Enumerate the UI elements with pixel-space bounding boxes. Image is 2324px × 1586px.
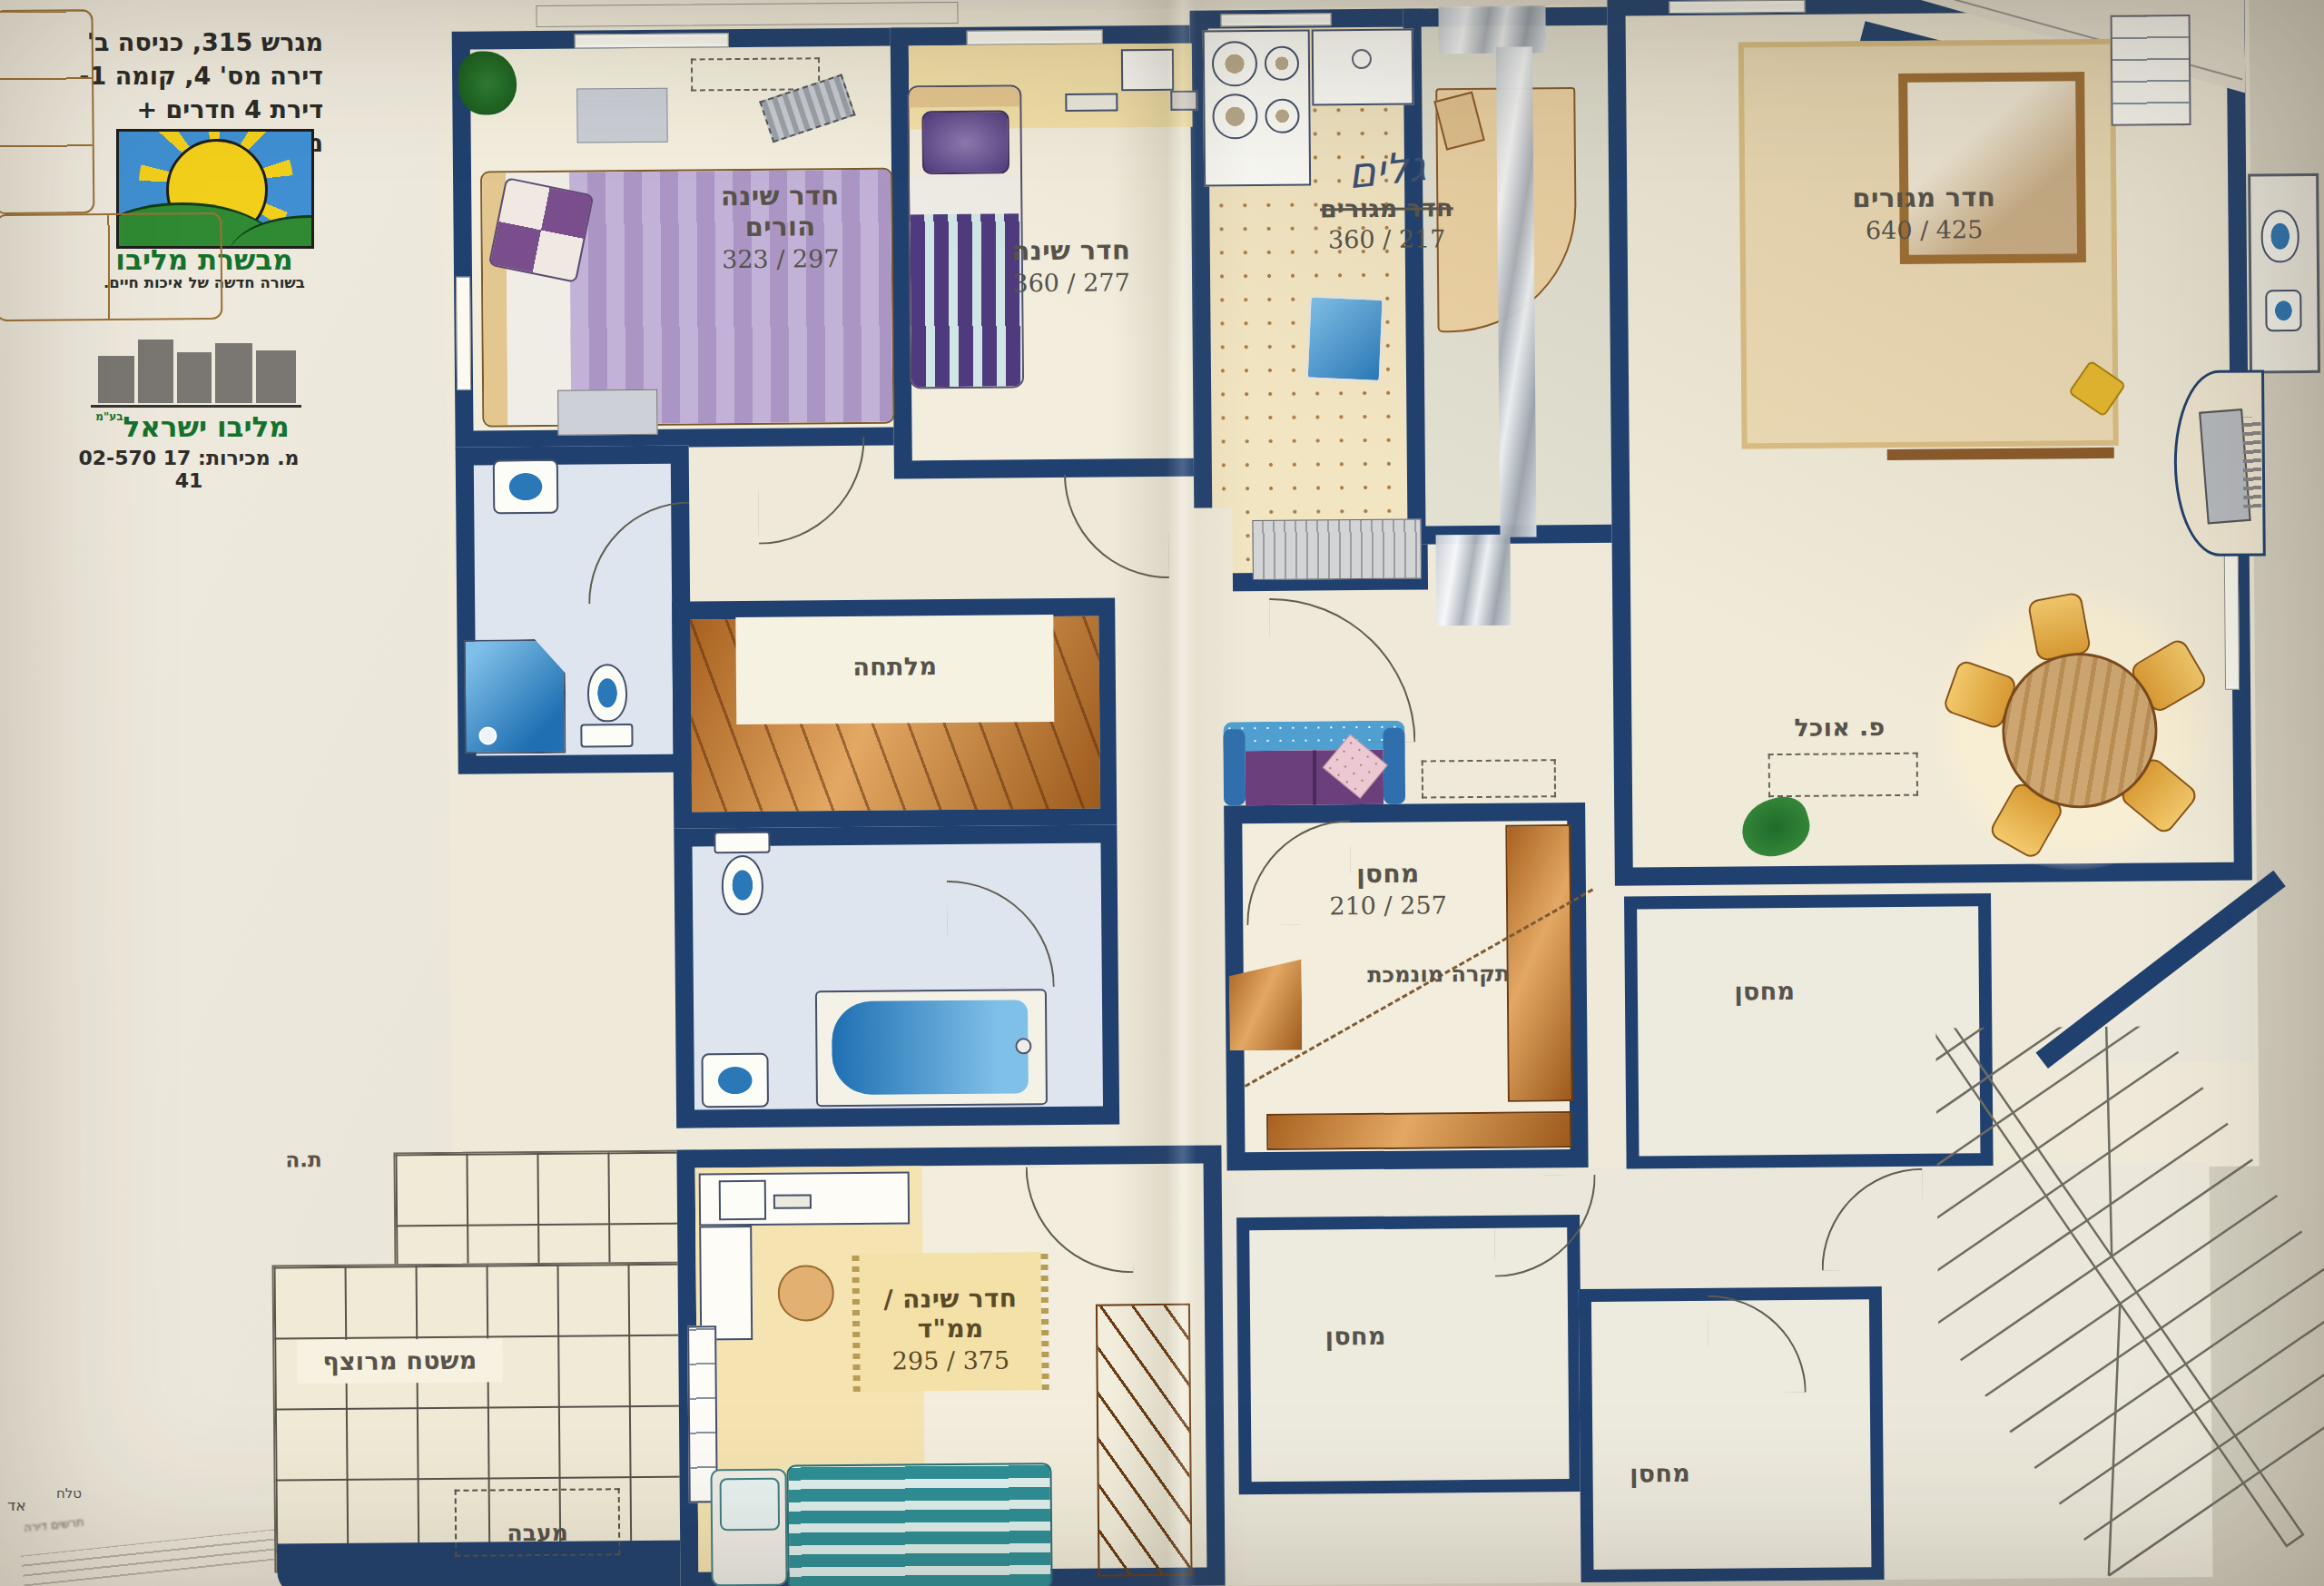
room-dims: 360 / 217 (1274, 224, 1501, 254)
wardrobe-cabinet-icon (1096, 1304, 1193, 1577)
bathtub-icon (815, 989, 1048, 1107)
bed-sheet (910, 173, 1020, 214)
sink-drain-icon (1352, 49, 1372, 69)
burner-icon (1265, 99, 1299, 133)
toilet-bowl-icon (722, 855, 764, 915)
floorplan-brochure-photo: מגרש 315, כניסה ב' דירה מס' 4, קומה 1- ד… (0, 0, 2324, 1586)
burner-icon (1212, 94, 1257, 139)
toilet-tank-icon (714, 832, 770, 854)
condenser-label: מעבה (478, 1519, 596, 1546)
storage-c-label: מחסן (1692, 977, 1837, 1006)
rug-fringe (1040, 1252, 1049, 1390)
th-label: ת.ה (271, 1148, 335, 1172)
sink-icon (701, 1053, 769, 1108)
parents-bedroom-label: חדר שינה הורים 323 / 297 (684, 180, 876, 274)
living-label: חדר מגורים 640 / 425 (1828, 182, 2020, 245)
toilet-tank-icon (580, 724, 633, 748)
wardrobe-label: מלתחה (782, 651, 1009, 681)
window (967, 30, 1103, 45)
storage-cabinet-icon (1266, 1111, 1571, 1150)
dresser-icon (557, 389, 657, 436)
room-dims: 323 / 297 (685, 244, 876, 274)
keyboard-icon (1065, 93, 1118, 112)
desk-chair-icon (778, 1265, 835, 1322)
computer-monitor-icon (1121, 49, 1174, 92)
pillow (720, 1478, 781, 1532)
shower-drain-icon (478, 726, 497, 744)
bathtub-basin (832, 1000, 1029, 1095)
window (456, 277, 471, 390)
checkered-pillow-icon (488, 177, 595, 283)
label-rug: חדר שינה / ממ"ד 295 / 375 (859, 1252, 1041, 1392)
den-label: גלים חדר מגורים 360 / 217 (1273, 144, 1501, 254)
toilet-bowl-icon (587, 664, 628, 722)
sink-icon (493, 459, 559, 515)
dining-table-icon (2002, 652, 2158, 808)
stairs-icon (1935, 1025, 2324, 1580)
room-name: חדר שינה / ממ"ד (860, 1283, 1042, 1345)
room-dims: 640 / 425 (1828, 215, 2019, 245)
shelf-icon (2111, 15, 2191, 126)
terrace-tiles (393, 1149, 697, 1270)
bed-blanket (786, 1463, 1052, 1586)
burner-icon (1265, 46, 1299, 81)
window (1669, 0, 1805, 14)
rug-icon (576, 88, 668, 143)
window (1221, 13, 1332, 26)
headboard (909, 86, 1019, 107)
dashed-closet-outline (691, 57, 820, 91)
foil-tape (1496, 46, 1537, 537)
pillow (921, 110, 1009, 174)
sofa-three-seat-icon (0, 9, 94, 214)
storage-a-label: מחסן (1283, 1321, 1428, 1350)
dining-label: פ. אוכל (1780, 713, 1898, 742)
room-name: חדר שינה הורים (684, 180, 876, 243)
bathtub-faucet-icon (1015, 1038, 1031, 1054)
window (575, 33, 729, 48)
safe-room-label: חדר שינה / ממ"ד 295 / 375 (860, 1283, 1042, 1375)
hallway (1114, 507, 1237, 1180)
keyboard-icon (773, 1194, 812, 1208)
kitchen-window-icon (1305, 294, 1385, 383)
chair-icon (2027, 591, 2092, 662)
desk-return-icon (699, 1226, 753, 1341)
lowered-ceiling-label: תקרה מונמכת (1344, 960, 1534, 988)
bedroom-label: חדר שינה 360 / 277 (980, 234, 1163, 298)
room-dims: 295 / 375 (860, 1345, 1041, 1375)
paved-area-label: משטח מרוצף (297, 1345, 502, 1375)
upper-balcony-outline (536, 2, 958, 27)
burner-icon (1212, 41, 1257, 86)
room-dims: 360 / 277 (980, 268, 1162, 298)
neighbor-bathroom (2248, 173, 2320, 374)
storage-b-label: מחסן (1587, 1459, 1732, 1488)
computer-monitor-icon (719, 1180, 766, 1220)
sofa-ledge (1887, 448, 2114, 460)
phone-icon (1170, 91, 1197, 111)
sofa-arm (1223, 729, 1246, 805)
floorplan: חדר שינה הורים 323 / 297 חדר שינה 360 / … (0, 0, 2324, 1586)
toilet-bowl-icon (2260, 210, 2299, 262)
sofa-two-seat-icon (0, 212, 222, 321)
dashed-outline (1422, 759, 1556, 798)
room-name: חדר מגורים (1828, 182, 2019, 214)
sideboard-icon (1252, 518, 1422, 580)
window (2224, 536, 2240, 690)
dashed-outline (1768, 753, 1918, 797)
room-name: חדר שינה (980, 234, 1162, 267)
sink-icon (2265, 290, 2301, 331)
vent-stripes (2242, 417, 2261, 507)
foil-tape (1436, 535, 1512, 626)
teen-bed-icon (710, 1463, 1049, 1586)
